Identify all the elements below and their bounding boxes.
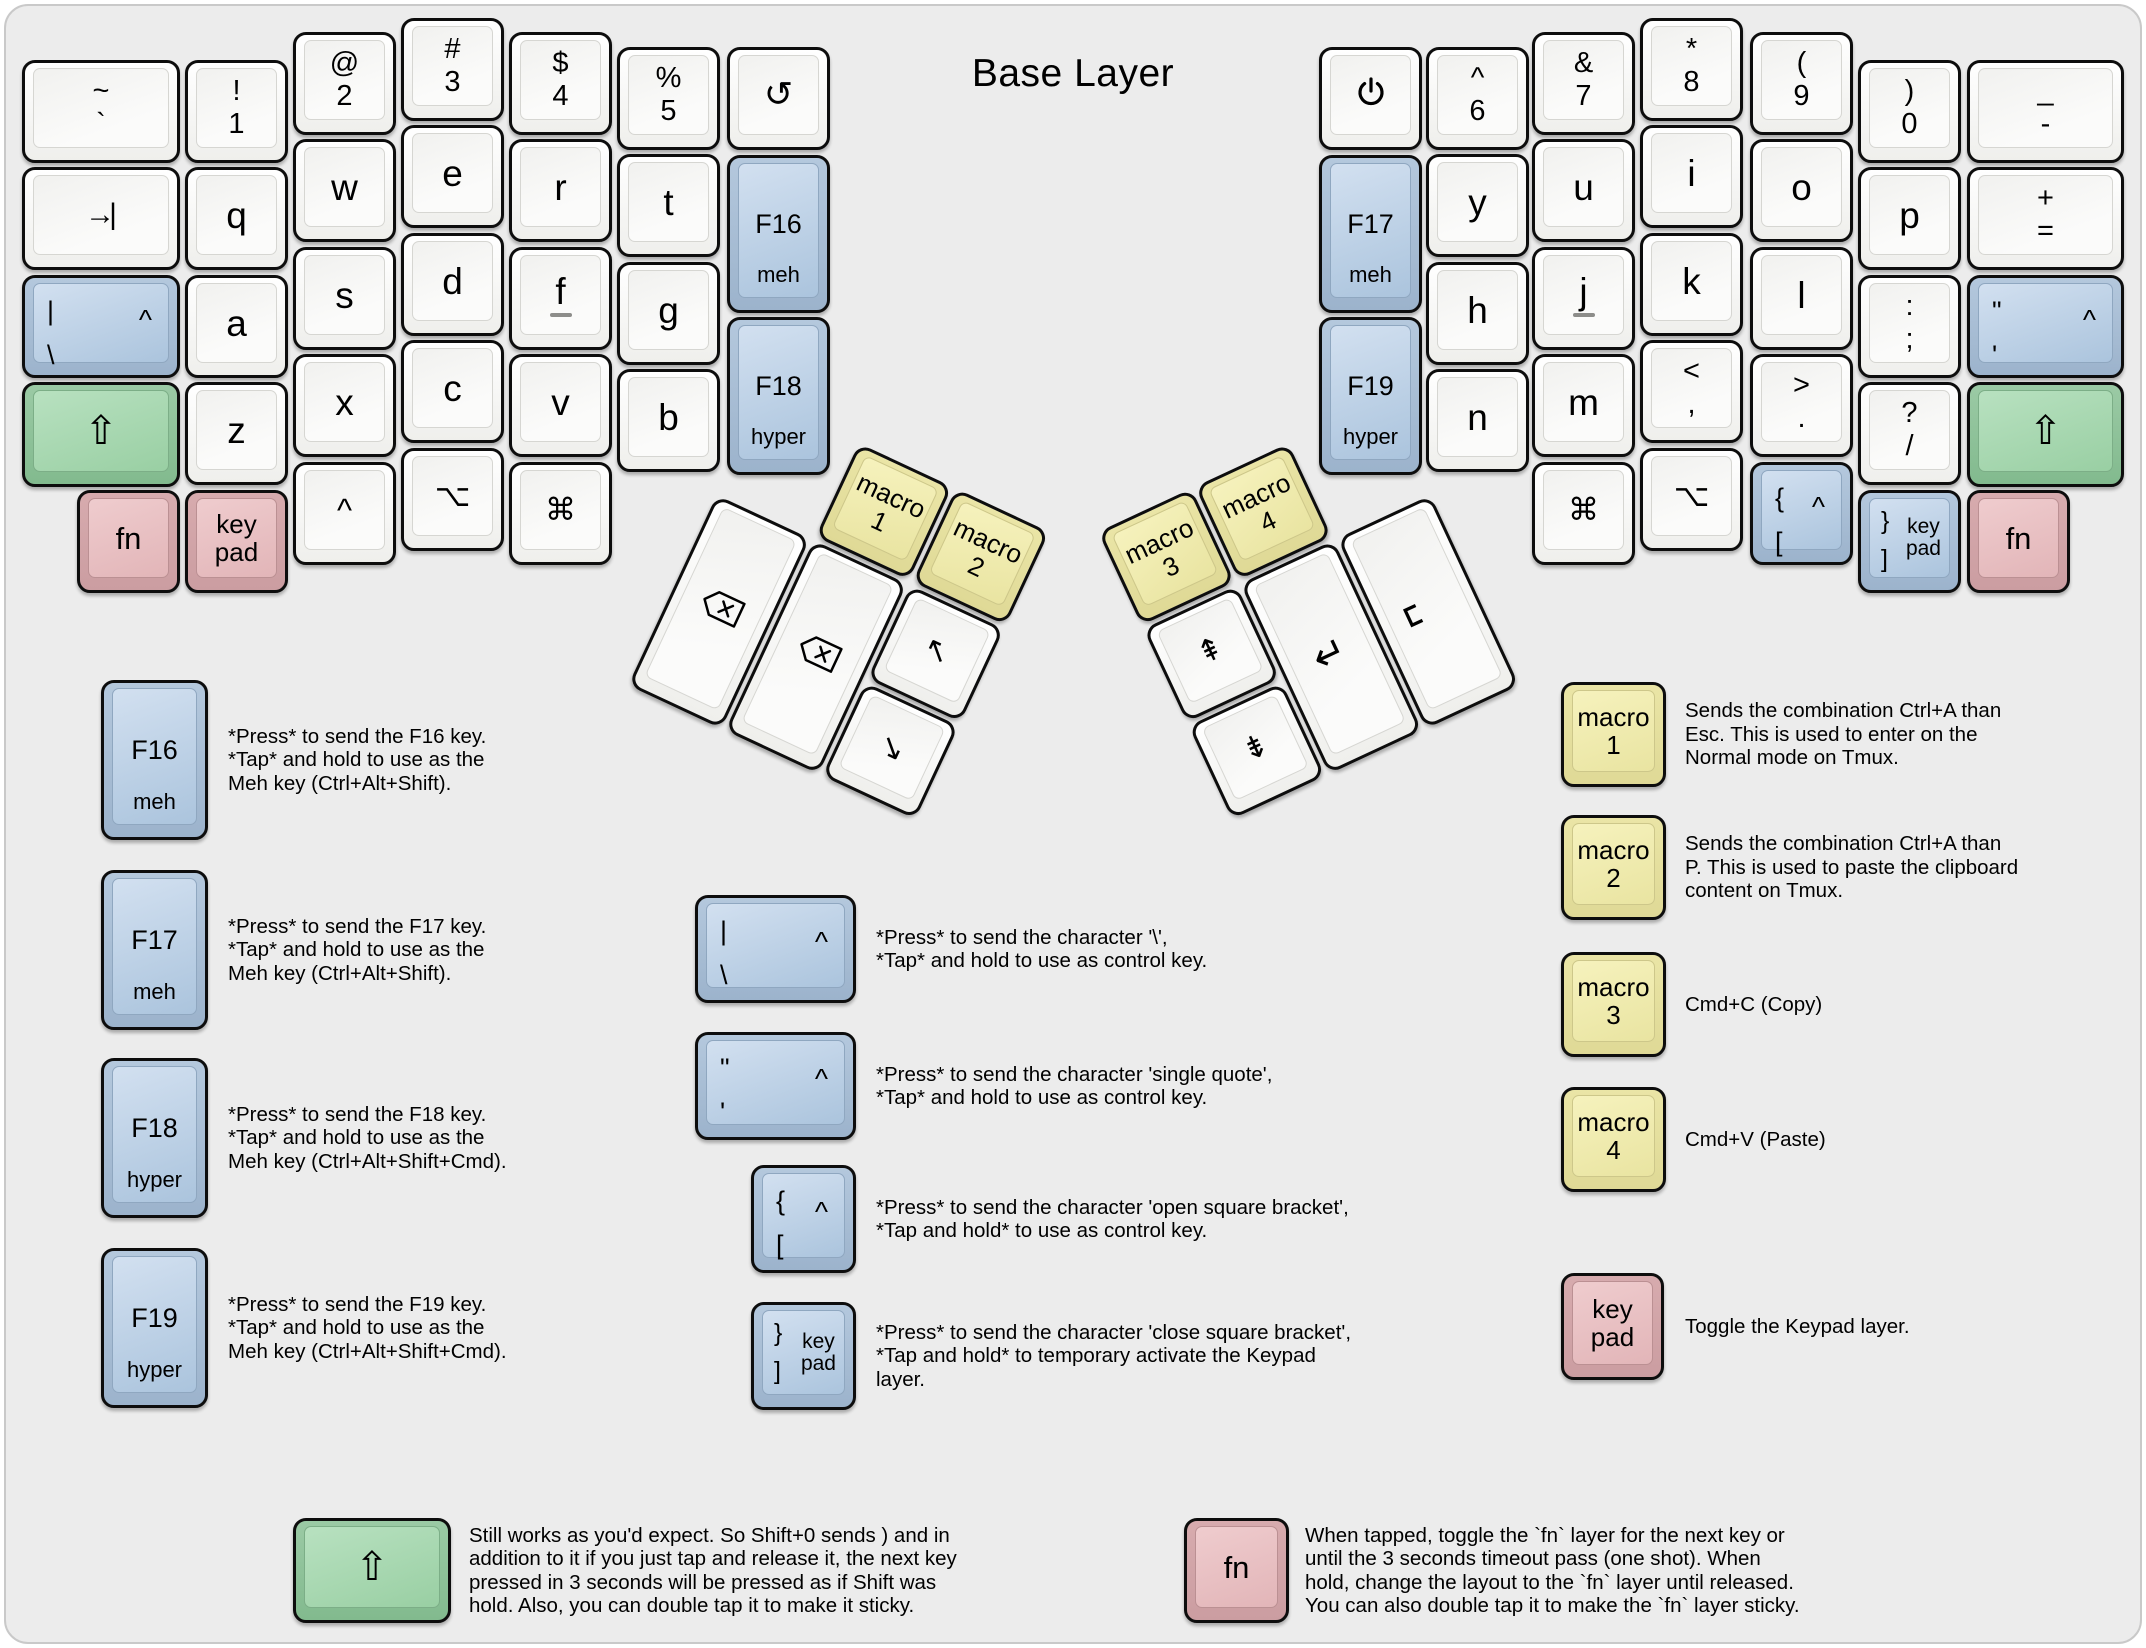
key-r-cap: r	[520, 147, 601, 227]
key-dollar-4-shifted-label: $	[552, 47, 568, 80]
key-k-cap: k	[1651, 241, 1732, 321]
key-question-slash: ?/	[1858, 382, 1961, 485]
legend-key-shift-description-line-0: Still works as you'd expect. So Shift+0 …	[469, 1524, 957, 1548]
key-hash-3-base-label: 3	[444, 66, 460, 99]
legend-key-macro-3-description: Cmd+C (Copy)	[1685, 993, 1822, 1017]
legend-key-closebracket-right-line-0: key	[801, 1331, 836, 1353]
key-f17-meh-cap: F17meh	[1330, 163, 1411, 298]
key-exclamation-1-shifted-label: !	[232, 75, 240, 108]
key-quote-control-main-labels: "'	[1992, 289, 2002, 377]
key-m: m	[1532, 354, 1635, 457]
legend-key-f17-sublabel: meh	[113, 979, 196, 1005]
key-h-cap: h	[1437, 270, 1518, 350]
legend-key-f18-description-line-2: Meh key (Ctrl+Alt+Shift+Cmd).	[228, 1150, 507, 1174]
key-lessthan-comma-base-label: ,	[1687, 388, 1695, 421]
key-m-label: m	[1568, 384, 1599, 421]
legend-key-quote-main-labels: "'	[720, 1046, 730, 1134]
key-right-fn-label: fn	[2006, 523, 2032, 554]
legend-key-shift-description: Still works as you'd expect. So Shift+0 …	[469, 1524, 957, 1618]
key-quote-control: "'^	[1967, 275, 2124, 378]
key-lessthan-comma-shifted-label: <	[1683, 355, 1700, 388]
key-backslash-control-cap: |\^	[33, 283, 169, 363]
key-tab: →|	[22, 167, 180, 270]
key-z-label: z	[227, 412, 246, 449]
key-c-label: c	[443, 370, 462, 407]
key-a: a	[185, 275, 288, 378]
key-left-fn-label: fn	[116, 523, 142, 554]
key-b-cap: b	[628, 377, 709, 457]
key-c-cap: c	[412, 348, 493, 428]
legend-key-fn-description: When tapped, toggle the `fn` layer for t…	[1305, 1524, 1800, 1618]
key-hash-3-shifted-label: #	[444, 33, 460, 66]
legend-key-f19-description-line-1: *Tap* and hold to use as the	[228, 1316, 507, 1340]
key-question-slash-cap: ?/	[1869, 390, 1950, 470]
key-closebracket-keypad-line-1: ]	[1881, 540, 1889, 578]
legend-key-shift-description-line-1: addition to it if you just tap and relea…	[469, 1547, 957, 1571]
legend-key-macro-3-label: macro3	[1577, 973, 1649, 1029]
backspace-icon	[694, 584, 746, 633]
legend-key-macro-2-description-line-0: Sends the combination Ctrl+A than	[1685, 832, 2018, 856]
key-left-keypad-line-1: pad	[215, 538, 258, 566]
key-power-cap	[1330, 55, 1411, 135]
key-dollar-4-base-label: 4	[552, 80, 568, 113]
key-percent-5-shifted-label: %	[656, 62, 682, 95]
legend-key-macro-1-description-line-0: Sends the combination Ctrl+A than	[1685, 699, 2001, 723]
key-macro-4-label: macro4	[1217, 468, 1306, 549]
key-openbracket-control-main-labels: {[	[1775, 476, 1784, 564]
key-i-cap: i	[1651, 133, 1732, 213]
key-r: r	[509, 139, 612, 242]
legend-key-f19-description-line-0: *Press* to send the F19 key.	[228, 1293, 507, 1317]
key-left-keypad-cap: keypad	[196, 498, 277, 578]
legend-key-f17-description-line-0: *Press* to send the F17 key.	[228, 915, 486, 939]
key-u: u	[1532, 139, 1635, 242]
key-n-label: n	[1467, 399, 1488, 436]
key-closebracket-keypad-right-line-1: pad	[1906, 538, 1941, 560]
key-macro-4-cap: macro4	[1208, 455, 1315, 562]
key-greaterthan-period-base-label: .	[1797, 402, 1805, 435]
legend-key-fn-description-line-3: You can also double tap it to make the `…	[1305, 1594, 1800, 1618]
legend-key-closebracket-line-0: }	[774, 1314, 782, 1352]
legend-key-macro-1-label: macro1	[1577, 703, 1649, 759]
key-exclamation-1-base-label: 1	[228, 108, 244, 141]
key-f16-meh-label: F16	[739, 209, 818, 240]
key-right-shift-label: ⇧	[2029, 411, 2063, 451]
legend-key-macro-3-description-line-0: Cmd+C (Copy)	[1685, 993, 1822, 1017]
key-f19-hyper-sublabel: hyper	[1331, 424, 1410, 450]
key-left-control-cap: ^	[304, 470, 385, 550]
legend-key-f16-description-line-1: *Tap* and hold to use as the	[228, 748, 486, 772]
legend-key-shift-description-line-2: pressed in 3 seconds will be pressed as …	[469, 1571, 957, 1595]
key-s-cap: s	[304, 255, 385, 335]
key-asterisk-8-cap: *8	[1651, 26, 1732, 106]
key-right-command: ⌘	[1532, 462, 1635, 565]
key-hash-3: #3	[401, 18, 504, 121]
legend-key-backslash: |\^	[695, 895, 856, 1003]
legend-key-f18-cap: F18hyper	[112, 1066, 197, 1203]
key-left-keypad: keypad	[185, 490, 288, 593]
key-f19-hyper: F19hyper	[1319, 317, 1422, 475]
key-f-cap: f	[520, 255, 601, 335]
key-backslash-control-line-0: |	[47, 289, 55, 333]
legend-key-macro-1-line-1: 1	[1577, 731, 1649, 759]
key-closebracket-keypad-line-0: }	[1881, 502, 1889, 540]
legend-key-f16-description-line-0: *Press* to send the F16 key.	[228, 725, 486, 749]
key-percent-5-cap: %5	[628, 55, 709, 135]
backspace-icon	[791, 630, 843, 679]
legend-key-f19-label: F19	[113, 1303, 196, 1334]
key-macro-2-cap: macro2	[929, 500, 1036, 607]
control-caret-icon: ^	[1812, 491, 1825, 523]
legend-key-keypad-label: keypad	[1591, 1295, 1634, 1351]
key-ampersand-7-base-label: 7	[1575, 80, 1591, 113]
key-openbracket-control-cap: {[^	[1761, 470, 1842, 550]
key-z-cap: z	[196, 390, 277, 470]
key-h-label: h	[1467, 292, 1488, 329]
key-left-shift-cap: ⇧	[33, 390, 169, 472]
legend-key-f18: F18hyper	[101, 1058, 208, 1218]
key-e-cap: e	[412, 133, 493, 213]
key-right-shift-cap: ⇧	[1978, 390, 2113, 472]
key-t-label: t	[663, 184, 673, 221]
key-w-cap: w	[304, 147, 385, 227]
key-f-label: f	[555, 273, 565, 310]
legend-key-macro-2: macro2	[1561, 815, 1666, 920]
legend-key-shift: ⇧	[293, 1518, 451, 1623]
legend-key-f16-sublabel: meh	[113, 789, 196, 815]
key-left-shift-label: ⇧	[84, 411, 118, 451]
legend-key-closebracket-main-labels: }]	[774, 1314, 782, 1390]
legend-key-fn-cap: fn	[1195, 1526, 1278, 1608]
key-f18-hyper-cap: F18hyper	[738, 325, 819, 460]
legend-key-openbracket-main-labels: {[	[776, 1179, 785, 1267]
key-caret-6-shifted-label: ^	[1471, 62, 1485, 95]
legend-key-openbracket-line-1: [	[776, 1223, 785, 1267]
key-i: i	[1640, 125, 1743, 228]
key-closebracket-keypad-cap: }]keypad	[1869, 498, 1950, 578]
key-end-label: ↘	[874, 728, 911, 767]
key-left-keypad-line-0: key	[215, 510, 258, 538]
control-caret-icon: ^	[815, 1196, 828, 1228]
key-tilde-grave-base-label: `	[96, 108, 106, 141]
control-caret-icon: ^	[815, 1063, 828, 1095]
key-plus-equal: +=	[1967, 167, 2124, 270]
key-p-label: p	[1899, 197, 1920, 234]
key-i-label: i	[1687, 155, 1695, 192]
key-greaterthan-period: >.	[1750, 354, 1853, 457]
key-underscore-dash-shifted-label: _	[2037, 75, 2053, 108]
key-f16-meh-cap: F16meh	[738, 163, 819, 298]
legend-key-backslash-line-0: |	[720, 909, 728, 953]
key-greaterthan-period-shifted-label: >	[1793, 369, 1810, 402]
key-u-cap: u	[1543, 147, 1624, 227]
legend-key-f18-description: *Press* to send the F18 key.*Tap* and ho…	[228, 1103, 507, 1174]
legend-key-quote-line-1: '	[720, 1090, 730, 1134]
legend-key-f17-description: *Press* to send the F17 key.*Tap* and ho…	[228, 915, 486, 986]
key-right-option-cap: ⌥	[1651, 456, 1732, 536]
key-f18-hyper-sublabel: hyper	[739, 424, 818, 450]
legend-key-f17: F17meh	[101, 870, 208, 1030]
legend-key-openbracket: {[^	[751, 1165, 856, 1273]
key-right-command-cap: ⌘	[1543, 470, 1624, 550]
key-t-cap: t	[628, 162, 709, 242]
key-x-label: x	[335, 384, 354, 421]
key-power	[1319, 47, 1422, 150]
key-k: k	[1640, 233, 1743, 336]
key-tilde-grave-cap: ~`	[33, 68, 169, 148]
control-caret-icon: ^	[815, 926, 828, 958]
key-paren-9: (9	[1750, 32, 1853, 135]
key-caret-6-base-label: 6	[1469, 95, 1485, 128]
legend-key-macro-1-description-line-2: Normal mode on Tmux.	[1685, 746, 2001, 770]
key-question-slash-shifted-label: ?	[1901, 397, 1917, 430]
legend-key-macro-3: macro3	[1561, 952, 1666, 1057]
legend-key-backslash-description-line-0: *Press* to send the character '\',	[876, 926, 1207, 950]
key-exclamation-1-cap: !1	[196, 68, 277, 148]
legend-key-macro-2-line-0: macro	[1577, 836, 1649, 864]
legend-key-quote-description: *Press* to send the character 'single qu…	[876, 1063, 1272, 1110]
key-w-label: w	[331, 169, 358, 206]
key-c: c	[401, 340, 504, 443]
legend-key-f16-cap: F16meh	[112, 688, 197, 825]
key-dollar-4: $4	[509, 32, 612, 135]
key-openbracket-control-line-0: {	[1775, 476, 1784, 520]
legend-key-f19-cap: F19hyper	[112, 1256, 197, 1393]
key-left-option-label: ⌥	[435, 481, 471, 512]
key-right-option-label: ⌥	[1674, 481, 1710, 512]
key-page-down-cap: ⇟	[1202, 694, 1309, 801]
key-tilde-grave: ~`	[22, 60, 180, 163]
key-at-2-shifted-label: @	[330, 47, 359, 80]
key-right-shift: ⇧	[1967, 382, 2124, 487]
key-left-fn-cap: fn	[88, 498, 169, 578]
key-redo-label: ↺	[764, 78, 793, 113]
key-macro-3-cap: macro3	[1111, 500, 1218, 607]
key-macro-1-cap: macro1	[832, 455, 939, 562]
key-home-cap: ↖	[884, 597, 991, 704]
key-a-label: a	[226, 305, 247, 342]
key-lessthan-comma-cap: <,	[1651, 348, 1732, 428]
legend-key-keypad-line-0: key	[1591, 1295, 1634, 1323]
legend-key-macro-2-cap: macro2	[1572, 823, 1655, 905]
key-f: f	[509, 247, 612, 350]
key-f17-meh-label: F17	[1331, 209, 1410, 240]
legend-key-closebracket-description-line-2: layer.	[876, 1368, 1351, 1392]
key-at-2: @2	[293, 32, 396, 135]
legend-key-shift-cap: ⇧	[304, 1526, 440, 1608]
legend-key-keypad-cap: keypad	[1572, 1281, 1653, 1365]
key-quote-control-cap: "'^	[1978, 283, 2113, 363]
key-caret-6-cap: ^6	[1437, 55, 1518, 135]
legend-key-macro-1: macro1	[1561, 682, 1666, 787]
legend-key-openbracket-description-line-0: *Press* to send the character 'open squa…	[876, 1196, 1349, 1220]
key-closebracket-keypad-main-labels: }]	[1881, 502, 1889, 578]
legend-key-macro-1-description: Sends the combination Ctrl+A thanEsc. Th…	[1685, 699, 2001, 770]
legend-key-quote-description-line-0: *Press* to send the character 'single qu…	[876, 1063, 1272, 1087]
legend-key-f16-label: F16	[113, 735, 196, 766]
legend-key-quote: "'^	[695, 1032, 856, 1140]
key-question-slash-base-label: /	[1905, 430, 1913, 463]
legend-key-backslash-cap: |\^	[706, 903, 845, 988]
legend-key-macro-4: macro4	[1561, 1087, 1666, 1192]
key-o-cap: o	[1761, 147, 1842, 227]
legend-key-shift-description-line-3: hold. Also, you can double tap it to mak…	[469, 1594, 957, 1618]
key-q-cap: q	[196, 175, 277, 255]
legend-key-openbracket-cap: {[^	[762, 1173, 845, 1258]
key-quote-control-line-0: "	[1992, 289, 2002, 333]
key-end-cap: ↘	[838, 694, 945, 801]
key-x-cap: x	[304, 362, 385, 442]
key-greaterthan-period-cap: >.	[1761, 362, 1842, 442]
key-closebracket-keypad-keypad-label: keypad	[1906, 516, 1941, 560]
key-q-label: q	[226, 197, 247, 234]
legend-key-backslash-line-1: \	[720, 953, 728, 997]
key-percent-5-base-label: 5	[660, 95, 676, 128]
legend-key-closebracket-cap: }]keypad	[762, 1310, 845, 1395]
key-lessthan-comma: <,	[1640, 340, 1743, 443]
legend-key-closebracket-line-1: ]	[774, 1352, 782, 1390]
legend-key-macro-1-description-line-1: Esc. This is used to enter on the	[1685, 723, 2001, 747]
key-paren-0-base-label: 0	[1901, 108, 1917, 141]
key-left-control-label: ^	[337, 494, 352, 526]
keyboard-layout-diagram: Base Layer ~`→||\^⇧fn!1qazkeypad@2wsx^#3…	[0, 0, 2146, 1648]
key-t: t	[617, 154, 720, 257]
key-h: h	[1426, 262, 1529, 365]
key-paren-0-shifted-label: )	[1905, 75, 1915, 108]
legend-key-f16-description: *Press* to send the F16 key.*Tap* and ho…	[228, 725, 486, 796]
legend-key-macro-3-line-0: macro	[1577, 973, 1649, 1001]
legend-key-macro-4-description: Cmd+V (Paste)	[1685, 1128, 1826, 1152]
legend-key-closebracket-keypad-label: keypad	[801, 1331, 836, 1375]
key-j-cap: j	[1543, 255, 1624, 335]
key-at-2-base-label: 2	[336, 80, 352, 113]
key-q: q	[185, 167, 288, 270]
legend-key-f18-sublabel: hyper	[113, 1167, 196, 1193]
legend-key-openbracket-line-0: {	[776, 1179, 785, 1223]
key-g-label: g	[658, 292, 679, 329]
legend-key-f17-description-line-1: *Tap* and hold to use as the	[228, 938, 486, 962]
legend-key-keypad-line-1: pad	[1591, 1323, 1634, 1351]
key-d-label: d	[442, 263, 463, 300]
key-b: b	[617, 369, 720, 472]
key-left-option: ⌥	[401, 448, 504, 551]
legend-key-f19-description-line-2: Meh key (Ctrl+Alt+Shift+Cmd).	[228, 1340, 507, 1364]
legend-key-macro-3-line-1: 3	[1577, 1001, 1649, 1029]
key-right-fn: fn	[1967, 490, 2070, 593]
legend-key-quote-description-line-1: *Tap* and hold to use as control key.	[876, 1086, 1272, 1110]
key-paren-9-shifted-label: (	[1797, 47, 1807, 80]
homing-bump	[550, 313, 572, 317]
legend-key-macro-4-label: macro4	[1577, 1108, 1649, 1164]
key-asterisk-8-base-label: 8	[1683, 66, 1699, 99]
legend-key-backslash-main-labels: |\	[720, 909, 728, 997]
key-asterisk-8-shifted-label: *	[1686, 33, 1697, 66]
key-left-shift: ⇧	[22, 382, 180, 487]
key-caret-6: ^6	[1426, 47, 1529, 150]
legend-key-keypad-description: Toggle the Keypad layer.	[1685, 1315, 1910, 1339]
key-j: j	[1532, 247, 1635, 350]
key-redo: ↺	[727, 47, 830, 150]
legend-key-f18-label: F18	[113, 1113, 196, 1144]
key-underscore-dash-cap: _-	[1978, 68, 2113, 148]
key-d-cap: d	[412, 241, 493, 321]
key-plus-equal-shifted-label: +	[2037, 182, 2054, 215]
legend-key-closebracket-description: *Press* to send the character 'close squ…	[876, 1321, 1351, 1392]
key-left-command: ⌘	[509, 462, 612, 565]
key-hash-3-cap: #3	[412, 26, 493, 106]
legend-key-macro-2-label: macro2	[1577, 836, 1649, 892]
power-icon	[1353, 75, 1389, 116]
key-y-cap: y	[1437, 162, 1518, 242]
key-paren-0-cap: )0	[1869, 68, 1950, 148]
control-caret-icon: ^	[2083, 304, 2096, 336]
key-s: s	[293, 247, 396, 350]
key-backslash-control-main-labels: |\	[47, 289, 55, 377]
legend-key-fn-label: fn	[1224, 1552, 1250, 1583]
key-left-command-cap: ⌘	[520, 470, 601, 550]
legend-key-openbracket-description-line-1: *Tap and hold* to use as control key.	[876, 1219, 1349, 1243]
key-n: n	[1426, 369, 1529, 472]
key-d: d	[401, 233, 504, 336]
key-n-cap: n	[1437, 377, 1518, 457]
key-z: z	[185, 382, 288, 485]
legend-key-macro-4-line-1: 4	[1577, 1136, 1649, 1164]
legend-key-f18-description-line-1: *Tap* and hold to use as the	[228, 1126, 507, 1150]
key-left-option-cap: ⌥	[412, 456, 493, 536]
key-openbracket-control-line-1: [	[1775, 520, 1784, 564]
legend-key-f19-sublabel: hyper	[113, 1357, 196, 1383]
legend-key-f17-label: F17	[113, 925, 196, 956]
key-f19-hyper-cap: F19hyper	[1330, 325, 1411, 460]
legend-key-fn-description-line-2: hold, change the layout to the `fn` laye…	[1305, 1571, 1800, 1595]
legend-key-f18-description-line-0: *Press* to send the F18 key.	[228, 1103, 507, 1127]
key-enter-label: ↵	[1306, 629, 1353, 679]
key-right-fn-cap: fn	[1978, 498, 2059, 578]
legend-key-f19: F19hyper	[101, 1248, 208, 1408]
key-o-label: o	[1791, 169, 1812, 206]
key-right-option: ⌥	[1640, 448, 1743, 551]
homing-bump	[1573, 313, 1595, 317]
key-b-label: b	[658, 399, 679, 436]
key-e: e	[401, 125, 504, 228]
legend-key-quote-cap: "'^	[706, 1040, 845, 1125]
legend-key-closebracket-description-line-0: *Press* to send the character 'close squ…	[876, 1321, 1351, 1345]
key-backslash-control: |\^	[22, 275, 180, 378]
key-v-cap: v	[520, 362, 601, 442]
key-percent-5: %5	[617, 47, 720, 150]
legend-key-keypad: keypad	[1561, 1273, 1664, 1380]
legend-key-f17-cap: F17meh	[112, 878, 197, 1015]
legend-key-closebracket-description-line-1: *Tap and hold* to temporary activate the…	[876, 1344, 1351, 1368]
legend-key-macro-2-description-line-2: content on Tmux.	[1685, 879, 2018, 903]
key-closebracket-keypad: }]keypad	[1858, 490, 1961, 593]
key-quote-control-line-1: '	[1992, 333, 2002, 377]
key-l-label: l	[1797, 277, 1805, 314]
legend-key-macro-4-cap: macro4	[1572, 1095, 1655, 1177]
legend-key-macro-4-description-line-0: Cmd+V (Paste)	[1685, 1128, 1826, 1152]
legend-key-f19-description: *Press* to send the F19 key.*Tap* and ho…	[228, 1293, 507, 1364]
legend-key-quote-line-0: "	[720, 1046, 730, 1090]
legend-key-openbracket-description: *Press* to send the character 'open squa…	[876, 1196, 1349, 1243]
key-ampersand-7: &7	[1532, 32, 1635, 135]
key-k-label: k	[1682, 263, 1701, 300]
legend-key-closebracket-right-line-1: pad	[801, 1353, 836, 1375]
key-left-command-label: ⌘	[545, 495, 576, 526]
key-dollar-4-cap: $4	[520, 40, 601, 120]
legend-key-closebracket: }]keypad	[751, 1302, 856, 1410]
legend-key-fn-description-line-1: until the 3 seconds timeout pass (one sh…	[1305, 1547, 1800, 1571]
key-colon-semicolon: :;	[1858, 275, 1961, 378]
